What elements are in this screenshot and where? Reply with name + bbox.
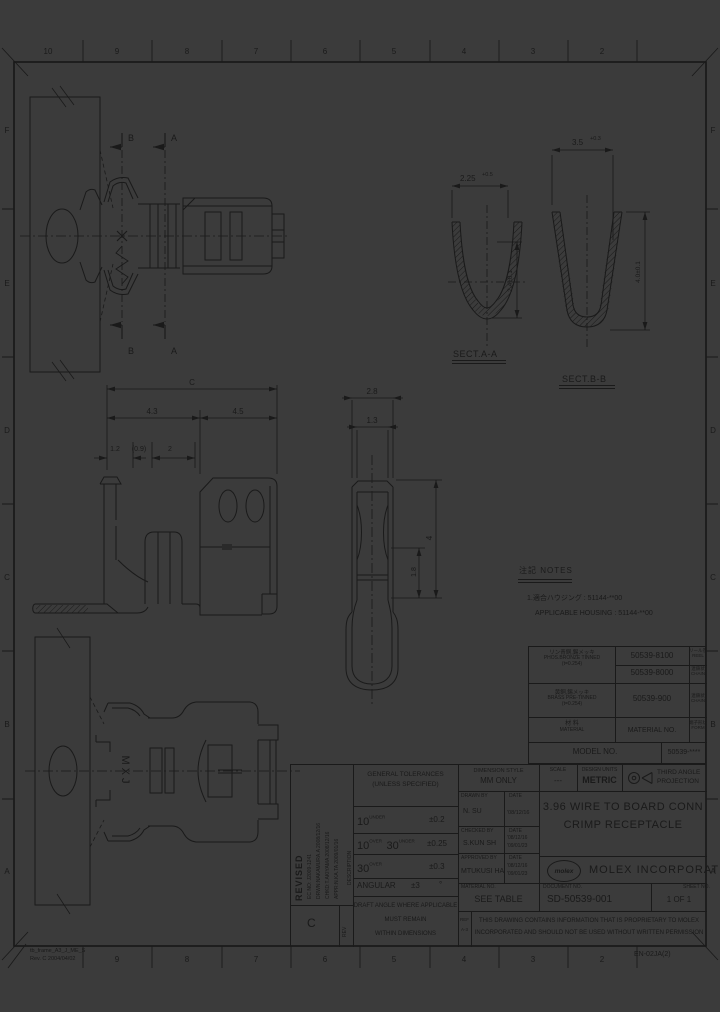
form-2-cell: 連鎖状 CHAIN: [689, 667, 707, 677]
tolerance-value-3: ±0.3: [429, 863, 445, 872]
checked-by-label: CHECKED BY: [461, 829, 494, 835]
zone-label: C: [710, 573, 716, 582]
drawing-title-line-1: 3.96 WIRE TO BOARD CONN: [539, 801, 707, 813]
company-name: MOLEX INCORPORATED: [589, 864, 720, 876]
part-number-2: 50539-8000: [617, 669, 687, 678]
checked-date-2: '09/01/23: [507, 844, 527, 850]
dim-sectb-w: 3.5: [572, 138, 584, 147]
zone-label: 10: [44, 47, 53, 56]
form-header-cell: 端子形状 FORM: [689, 721, 707, 731]
zone-label: A: [4, 867, 10, 876]
section-a-label: SECT.A-A: [453, 349, 498, 359]
form-1-en: REEL: [689, 654, 707, 659]
projection-line-2: PROJECTION: [657, 778, 699, 785]
dimension-style-label: DIMENSION STYLE: [458, 768, 539, 774]
revision-checked: CHKD:T.AKIYAMA 2008/12/16: [326, 832, 332, 899]
revision-letter: C: [307, 917, 316, 930]
section-b-label: SECT.B-B: [562, 374, 607, 384]
form-3-en: CHAIN: [689, 699, 707, 704]
zone-label: 2: [600, 955, 605, 964]
material-table: リン青銅,錫メッキ PHOS.BRONZE TINNED (t=0.254) 5…: [528, 646, 706, 764]
zone-label: E: [4, 279, 9, 288]
tol2-range-b: 30: [386, 840, 398, 852]
dim-seg-b: 4.5: [232, 407, 244, 416]
drawn-date-label: DATE: [509, 794, 522, 800]
material-no-value: SEE TABLE: [458, 895, 539, 905]
form-header-en: FORM: [689, 726, 707, 731]
draft-note-3: WITHIN DIMENSIONS: [353, 931, 458, 938]
third-angle-projection-icon: [625, 767, 655, 789]
section-arrow-label-b: B: [128, 346, 134, 356]
tol2-qualifier-b: UNDER: [399, 839, 415, 844]
zone-label: 8: [185, 47, 190, 56]
angular-unit: °: [439, 881, 442, 890]
dim-secta-w: 2.25: [460, 174, 476, 183]
revision-drawn: DRWN:NAKAMURA.A 2008/12/16: [317, 823, 323, 899]
material-1-thickness: (t=0.254): [531, 662, 613, 668]
section-arrow-label-a: A: [171, 133, 177, 143]
material-header-cell: 材 料 MATERIAL: [531, 721, 613, 733]
zone-label: 6: [323, 47, 328, 56]
zone-label: D: [4, 426, 10, 435]
dim-front-h2: 1.8: [411, 567, 418, 577]
revision-ec-no: EC NO: J2009-1241: [308, 854, 314, 899]
model-no-label: MODEL NO.: [531, 748, 659, 757]
drawn-by-label: DRAWN BY: [461, 794, 488, 800]
notes-heading: 注記 NOTES: [519, 567, 573, 576]
angular-label: ANGULAR: [357, 882, 396, 891]
dim-seg-e: 2: [168, 446, 172, 453]
section-b-view: 3.5 +0.3 4.0±0.1 SECT.B-B: [552, 136, 650, 389]
dim-secta-h: 2.4±0.1: [507, 270, 514, 292]
terminal-top-view-with-wire: MXJ: [25, 628, 300, 914]
material-header-en: MATERIAL: [531, 728, 613, 734]
revision-description-label: DESCRIPTION: [348, 851, 354, 885]
dim-sectb-h: 4.0±0.1: [635, 261, 642, 283]
material-no-header: MATERIAL NO.: [617, 727, 687, 735]
part-number-1: 50539-8100: [617, 652, 687, 661]
dim-secta-w-tol: +0.5: [482, 172, 493, 178]
zone-label: F: [711, 126, 716, 135]
checked-date-1: '08/12/16: [507, 836, 527, 842]
drawn-by-name: N. SU: [463, 808, 482, 816]
material-2-thickness: (t=0.254): [531, 702, 613, 708]
revision-approved: APPR:N.KA.TA 2009/01/16: [335, 839, 341, 899]
revision-rev-label: REV: [343, 927, 349, 937]
zone-label: 6: [323, 955, 328, 964]
frame-file-rev: Rev. C 2004/04/02: [30, 956, 75, 962]
zone-label: 4: [462, 47, 467, 56]
draft-note-2: MUST REMAIN: [353, 917, 458, 924]
zone-label: 4: [462, 955, 467, 964]
tol2-qualifier: OVER: [369, 839, 382, 844]
tol1-range: 10: [357, 816, 369, 828]
drawing-sheet: 10 9 8 7 6 5 4 3 2 9 8 7 6 5 4 3 2 F E D…: [0, 0, 720, 1012]
ref-line-2: A-3: [458, 928, 471, 933]
part-number-3: 50539-900: [617, 695, 687, 704]
dim-front-w: 2.8: [366, 387, 378, 396]
zone-label: E: [710, 279, 715, 288]
zone-label: 8: [185, 955, 190, 964]
tol2-range: 10: [357, 840, 369, 852]
tolerance-header-2: (UNLESS SPECIFIED): [353, 781, 458, 788]
disclaimer-line-1: THIS DRAWING CONTAINS INFORMATION THAT I…: [471, 918, 707, 925]
terminal-side-view-with-wire: B A B A: [20, 86, 288, 381]
zone-label: F: [5, 126, 10, 135]
approved-date-label: DATE: [509, 856, 522, 862]
zone-label: B: [4, 720, 9, 729]
terminal-front-view: 2.8 1.3 4 1.8: [342, 387, 442, 705]
material-no-label: MATERIAL NO.: [461, 885, 496, 891]
dim-front-h: 4: [425, 535, 434, 540]
model-no-value: 50539-****: [661, 749, 707, 757]
dim-overall: C: [189, 378, 195, 387]
zone-label: 9: [115, 47, 120, 56]
document-no-label: DOCUMENT NO.: [543, 885, 582, 891]
dim-seg-a: 4.3: [146, 407, 158, 416]
scale-label: SCALE: [539, 768, 577, 774]
projection-line-1: THIRD ANGLE: [657, 769, 700, 776]
material-2-cell: 黄銅,錫メッキ BRASS PRE-TINNED (t=0.254): [531, 690, 613, 707]
note-line-1: 1.適合ハウジング : 51144-**00: [527, 595, 622, 603]
angular-value: ±3: [411, 882, 420, 891]
dimension-style-value: MM ONLY: [458, 777, 539, 786]
design-units-label: DESIGN UNITS: [577, 768, 622, 774]
sheet-doc-code: EN-02JA(2): [634, 951, 671, 959]
tolerance-row-3: 30OVER: [357, 859, 382, 877]
dim-sectb-w-tol: +0.3: [590, 136, 601, 142]
document-no-value: SD-50539-001: [547, 894, 612, 905]
molex-logo: molex: [547, 860, 581, 882]
scale-value: ---: [539, 777, 577, 786]
form-1-cell: リール巻 REEL: [689, 649, 707, 659]
tol1-qualifier: UNDER: [369, 815, 385, 820]
approved-by-name: MTUKUSI HA: [461, 868, 504, 876]
checked-date-label: DATE: [509, 829, 522, 835]
molex-logo-text: molex: [555, 868, 574, 875]
zone-label: 5: [392, 955, 397, 964]
sheet-no-label: SHEET NO.: [683, 885, 710, 891]
revised-label: REVISED: [295, 854, 305, 901]
zone-label: 5: [392, 47, 397, 56]
zone-label: 3: [531, 955, 536, 964]
ref-line-1: REF: [458, 918, 471, 923]
tolerance-row-1: 10UNDER: [357, 812, 385, 830]
zone-label: 9: [115, 955, 120, 964]
section-a-view: 2.25 +0.5 2.4±0.1 SECT.A-A: [448, 172, 526, 364]
zone-label: 2: [600, 47, 605, 56]
zone-label: 3: [531, 47, 536, 56]
design-units-value: METRIC: [577, 776, 622, 786]
tolerance-value-1: ±0.2: [429, 816, 445, 825]
zone-label: C: [4, 573, 10, 582]
material-1-cell: リン青銅,錫メッキ PHOS.BRONZE TINNED (t=0.254): [531, 650, 613, 667]
zone-label: 7: [254, 955, 259, 964]
zone-label: D: [710, 426, 716, 435]
tol3-qualifier: OVER: [369, 862, 382, 867]
dim-front-inner: 1.3: [366, 416, 378, 425]
tol3-range: 30: [357, 863, 369, 875]
tolerance-row-2: 10OVER 30UNDER: [357, 836, 415, 854]
terminal-tail-side-view: C 4.3 4.5 1.2 (0.9) 2: [33, 378, 277, 615]
sheet-no-value: 1 OF 1: [651, 896, 707, 905]
dim-seg-d: (0.9): [132, 446, 146, 453]
checked-by-name: S.KUN SH: [463, 840, 496, 848]
tolerance-header-1: GENERAL TOLERANCES: [353, 771, 458, 778]
form-2-en: CHAIN: [689, 672, 707, 677]
note-line-2: APPLICABLE HOUSING : 51144-**00: [535, 610, 653, 618]
title-block: REVISED EC NO: J2009-1241 DRWN:NAKAMURA.…: [290, 764, 706, 946]
tolerance-value-2: ±0.25: [427, 840, 447, 849]
approved-by-label: APPROVED BY: [461, 856, 497, 862]
approved-date-2: '09/01/23: [507, 872, 527, 878]
approved-date-1: '08/12/16: [507, 864, 527, 870]
section-arrow-label-b: B: [128, 133, 134, 143]
terminal-marking: MXJ: [119, 756, 131, 787]
draft-note-1: DRAFT ANGLE WHERE APPLICABLE: [353, 903, 458, 910]
drawn-date: '08/12/16: [507, 810, 529, 816]
dim-seg-c: 1.2: [110, 446, 120, 453]
form-3-cell: 連鎖状 CHAIN: [689, 694, 707, 704]
section-arrow-label-a: A: [171, 346, 177, 356]
disclaimer-line-2: INCORPORATED AND SHOULD NOT BE USED WITH…: [471, 930, 707, 937]
zone-label: B: [710, 720, 715, 729]
drawing-title-line-2: CRIMP RECEPTACLE: [539, 819, 707, 831]
frame-file-name: tb_frame_A3_J_ME_S: [30, 948, 85, 954]
zone-label: 7: [254, 47, 259, 56]
